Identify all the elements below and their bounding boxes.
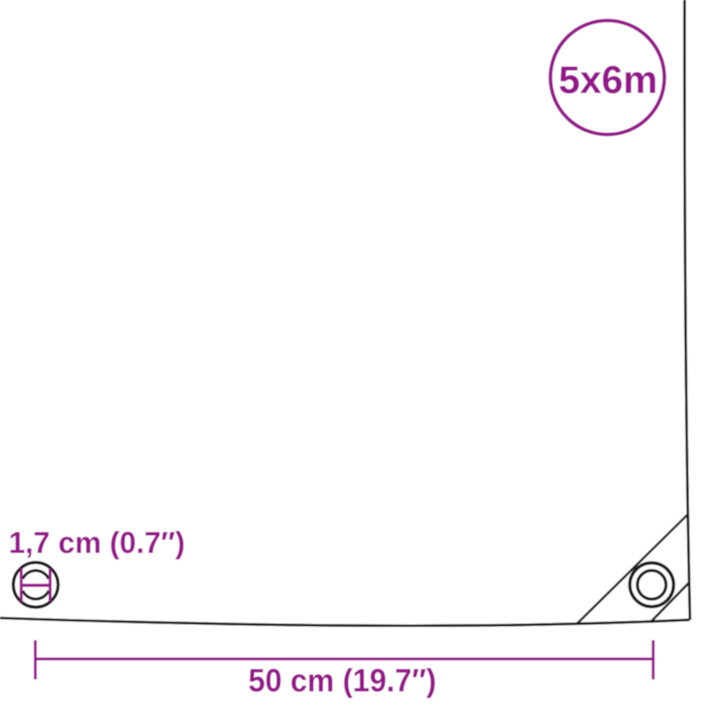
svg-text:50 cm (19.7″): 50 cm (19.7″): [248, 663, 436, 699]
svg-text:1,7 cm (0.7″): 1,7 cm (0.7″): [9, 525, 186, 560]
svg-text:5x6m: 5x6m: [559, 59, 658, 102]
